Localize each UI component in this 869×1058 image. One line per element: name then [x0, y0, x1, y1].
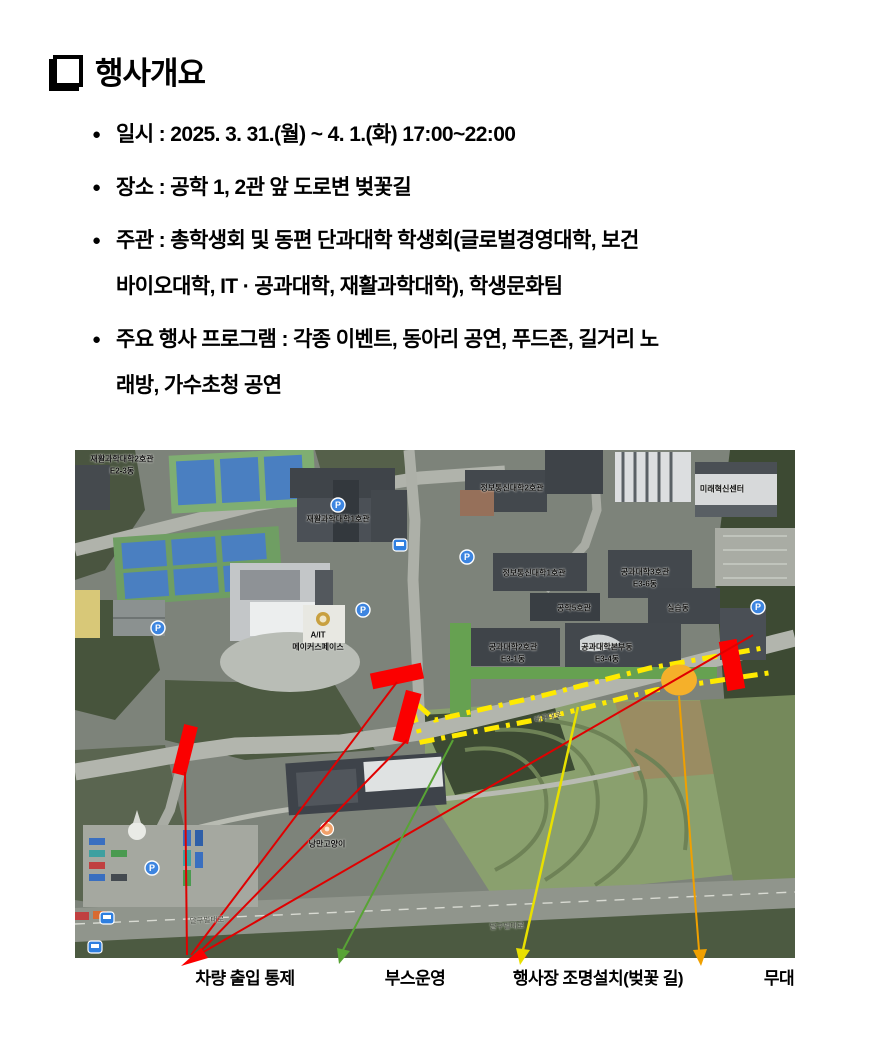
bullet-icon: ●: [92, 317, 116, 409]
page-title: 행사개요: [53, 48, 205, 93]
program-text-line2: 래방, 가수초청 공연: [116, 363, 822, 409]
building-practice: [648, 588, 720, 624]
svg-text:P: P: [755, 602, 761, 612]
building-dorm: [285, 752, 446, 815]
square-bullet-icon: [53, 55, 83, 87]
building: [75, 465, 110, 510]
svg-text:P: P: [360, 605, 366, 615]
bullet-icon: ●: [92, 218, 116, 310]
building-future-center: [695, 462, 777, 517]
satellite-map-image: P P P P P P: [75, 450, 795, 970]
svg-text:P: P: [155, 623, 161, 633]
event-detail-list: ● 일시 : 2025. 3. 31.(월) ~ 4. 1.(화) 17:00~…: [92, 112, 822, 416]
datetime-text: 일시 : 2025. 3. 31.(월) ~ 4. 1.(화) 17:00~22…: [116, 112, 822, 158]
host-text-line2: 바이오대학, IT · 공과대학, 재활과학대학), 학생문화팀: [116, 264, 822, 310]
list-item-place: ● 장소 : 공학 1, 2관 앞 도로변 벚꽃길: [92, 165, 822, 211]
host-text-line1: 주관 : 총학생회 및 동편 단과대학 학생회(글로벌경영대학, 보건: [116, 218, 822, 264]
list-item-program: ● 주요 행사 프로그램 : 각종 이벤트, 동아리 공연, 푸드존, 길거리 …: [92, 317, 822, 409]
parking-lot-ne: [715, 528, 795, 586]
building-eng-hq: [565, 623, 681, 669]
program-text-line1: 주요 행사 프로그램 : 각종 이벤트, 동아리 공연, 푸드존, 길거리 노: [116, 317, 822, 363]
ait-makerspace-plaza: [303, 605, 345, 643]
bullet-icon: ●: [92, 112, 116, 158]
building-eng-2: [460, 628, 560, 666]
svg-text:P: P: [149, 863, 155, 873]
legend-booth: 부스운영: [385, 964, 446, 989]
legend-lighting: 행사장 조명설치(벚꽃 길): [513, 964, 683, 989]
svg-text:P: P: [464, 552, 470, 562]
building-striped: [615, 452, 691, 502]
building-rehab-1: [290, 468, 407, 542]
building-it-1: [493, 553, 587, 591]
svg-text:P: P: [335, 500, 341, 510]
stage-marker: [661, 665, 697, 696]
cat-poi-icon: [321, 823, 334, 836]
legend-traffic-control: 차량 출입 통제: [195, 964, 294, 989]
list-item-datetime: ● 일시 : 2025. 3. 31.(월) ~ 4. 1.(화) 17:00~…: [92, 112, 822, 158]
place-text: 장소 : 공학 1, 2관 앞 도로변 벚꽃길: [116, 165, 822, 211]
page-title-text: 행사개요: [95, 48, 205, 93]
building-yellow: [75, 590, 100, 638]
campus-map: P P P P P P: [75, 450, 795, 970]
building-eng-5: [530, 593, 600, 621]
legend-stage: 무대: [764, 964, 794, 989]
list-item-host: ● 주관 : 총학생회 및 동편 단과대학 학생회(글로벌경영대학, 보건 바이…: [92, 218, 822, 310]
bullet-icon: ●: [92, 165, 116, 211]
